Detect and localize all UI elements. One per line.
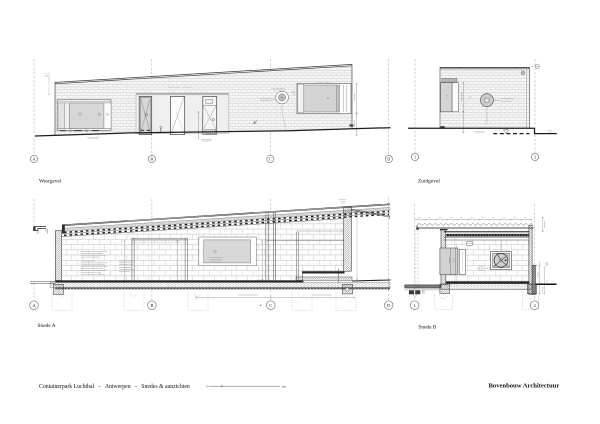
svg-text:2: 2: [534, 155, 536, 160]
svg-text:1: 1: [414, 155, 416, 160]
svg-text:Westgevel: Westgevel: [39, 178, 62, 184]
svg-text:Zuidgevel: Zuidgevel: [418, 178, 440, 184]
svg-text:Containerpark Luchtbal - A: Containerpark Luchtbal - Antwerpen - Sne…: [39, 384, 190, 390]
svg-text:D: D: [387, 157, 390, 162]
svg-text:Snede A: Snede A: [38, 323, 56, 329]
svg-text:0: 0: [206, 385, 208, 389]
svg-text:Bovenbouw Architectuur: Bovenbouw Architectuur: [489, 383, 560, 390]
svg-text:C: C: [269, 303, 272, 308]
svg-text:A: A: [32, 157, 35, 162]
svg-text:B: B: [150, 303, 153, 308]
svg-text:B: B: [150, 157, 153, 162]
svg-text:Snede B: Snede B: [418, 324, 437, 330]
svg-text:5m: 5m: [281, 385, 286, 389]
svg-text:C: C: [269, 157, 272, 162]
